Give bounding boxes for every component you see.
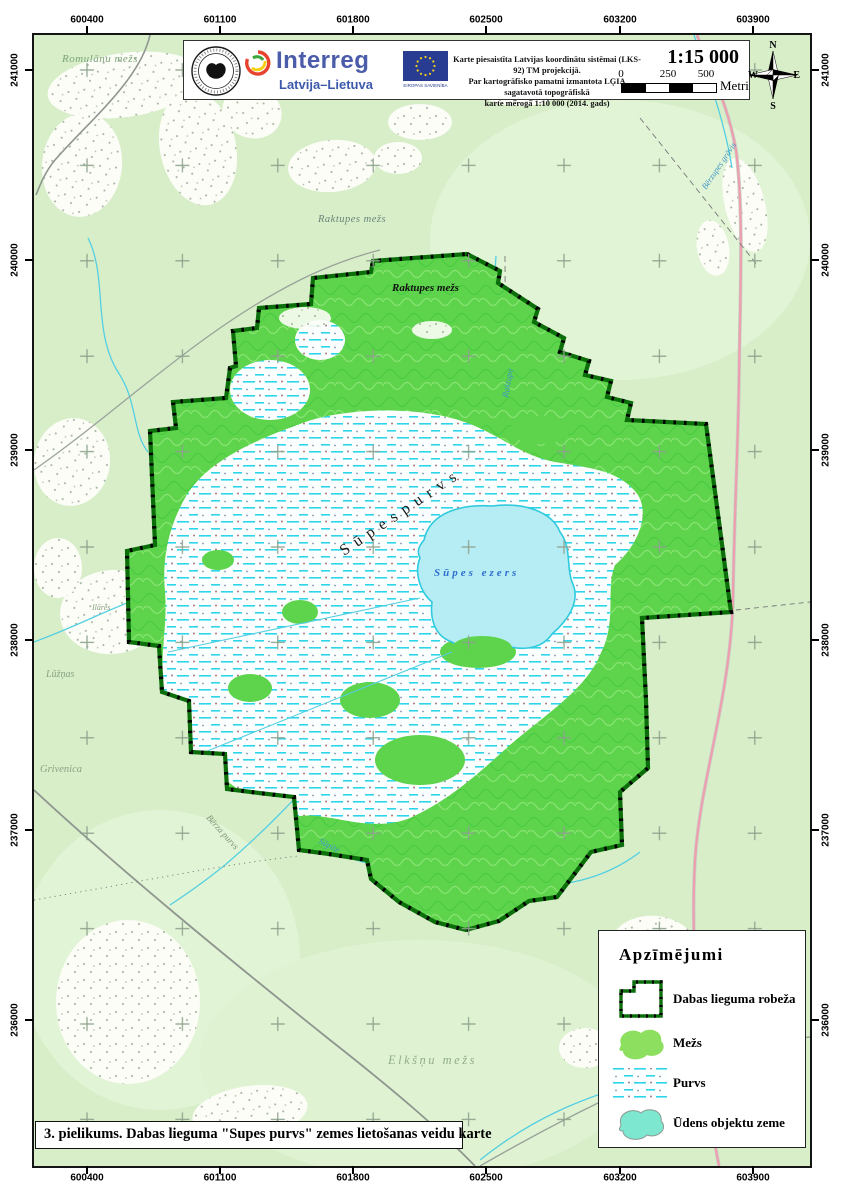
- eu-flag-label: EIROPAS SAVIENĪBA: [403, 83, 448, 88]
- map-sheet: Romulānu mežs Raktupes mežs Raktupes mež…: [0, 0, 842, 1190]
- forest-symbol-icon: [611, 1023, 669, 1063]
- label-elksnu-mezs: Elkšņu mežs: [387, 1053, 477, 1067]
- compass-n: N: [769, 40, 777, 51]
- scalebar-tick-500: 500: [698, 68, 715, 80]
- compass-e: E: [793, 70, 800, 81]
- grid-label-top: 603200: [603, 15, 636, 26]
- boundary-symbol-icon: [611, 977, 669, 1021]
- map-note-line1: Karte piesaistīta Latvijas koordinātu si…: [452, 54, 642, 76]
- label-grivenica: Grivenica: [40, 764, 82, 775]
- scalebar-tick-0: 0: [618, 68, 624, 80]
- grid-tick: [219, 1166, 221, 1174]
- grid-label-right: 240000: [821, 243, 832, 276]
- grid-tick: [25, 639, 33, 641]
- scalebar-tick-250: 250: [660, 68, 677, 80]
- grid-tick: [485, 26, 487, 34]
- legend-title: Apzīmējumi: [619, 945, 724, 965]
- grid-label-left: 238000: [10, 623, 21, 656]
- legend-label-water: Ūdens objektu zeme: [673, 1115, 785, 1131]
- label-supes-ezers: Sūpes ezers: [434, 567, 519, 579]
- grid-label-left: 239000: [10, 433, 21, 466]
- grid-label-right: 238000: [821, 623, 832, 656]
- grid-tick: [352, 1166, 354, 1174]
- legend: Apzīmējumi Dabas lieguma robeža Mežs Pur…: [598, 930, 806, 1148]
- interreg-programme-name: Latvija–Lietuva: [279, 77, 373, 92]
- grid-tick: [811, 69, 819, 71]
- legend-label-bog: Purvs: [673, 1075, 706, 1091]
- scale-ratio: 1:15 000: [667, 46, 739, 69]
- grid-tick: [811, 829, 819, 831]
- grid-label-bottom: 603200: [603, 1173, 636, 1184]
- grid-tick: [811, 259, 819, 261]
- grid-label-right: 237000: [821, 813, 832, 846]
- label-ilares: Ilāres: [91, 603, 110, 612]
- compass-rose-icon: N E S W: [746, 40, 802, 110]
- grid-label-right: 241000: [821, 53, 832, 86]
- grid-tick: [86, 26, 88, 34]
- grid-label-left: 241000: [10, 53, 21, 86]
- grid-label-left: 240000: [10, 243, 21, 276]
- grid-tick: [219, 26, 221, 34]
- grid-tick: [25, 449, 33, 451]
- map-note-line2: Par kartogrāfisko pamatni izmantota LĢIA…: [452, 76, 642, 98]
- grid-tick: [25, 1019, 33, 1021]
- grid-tick: [752, 26, 754, 34]
- grid-tick: [752, 1166, 754, 1174]
- grid-tick: [811, 639, 819, 641]
- grid-tick: [811, 1019, 819, 1021]
- label-raktupes-mezs-inside: Raktupes mežs: [391, 282, 459, 294]
- grid-label-top: 602500: [469, 15, 502, 26]
- grid-label-left: 237000: [10, 813, 21, 846]
- grid-label-bottom: 601800: [336, 1173, 369, 1184]
- scalebar-unit: Metri: [720, 78, 749, 94]
- grid-tick: [485, 1166, 487, 1174]
- grid-tick: [25, 829, 33, 831]
- grid-label-left: 236000: [10, 1003, 21, 1036]
- water-symbol-icon: [611, 1103, 669, 1143]
- legend-label-forest: Mežs: [673, 1035, 702, 1051]
- grid-tick: [86, 1166, 88, 1174]
- interreg-wordmark: Interreg: [276, 47, 369, 75]
- title-block: Interreg Latvija–Lietuva EIROPAS SAVIENĪ…: [183, 40, 750, 100]
- map-title: 3. pielikums. Dabas lieguma "Supes purvs…: [35, 1121, 463, 1149]
- grid-label-top: 601100: [204, 15, 237, 26]
- grid-label-top: 601800: [336, 15, 369, 26]
- nature-authority-emblem-icon: [189, 44, 243, 98]
- grid-tick: [25, 69, 33, 71]
- eu-flag-icon: [403, 51, 448, 81]
- bog-symbol-icon: [611, 1065, 669, 1101]
- grid-tick: [352, 26, 354, 34]
- grid-label-bottom: 600400: [70, 1173, 103, 1184]
- label-romulanu-mezs: Romulānu mežs: [61, 53, 138, 65]
- interreg-swirl-icon: [244, 49, 272, 77]
- map-note-line3: karte mērogā 1:10 000 (2014. gads): [452, 98, 642, 109]
- label-raktupes-mezs-outside: Raktupes mežs: [317, 214, 386, 225]
- grid-label-bottom: 602500: [469, 1173, 502, 1184]
- grid-label-bottom: 603900: [736, 1173, 769, 1184]
- grid-label-right: 239000: [821, 433, 832, 466]
- grid-tick: [619, 1166, 621, 1174]
- grid-tick: [25, 259, 33, 261]
- grid-label-top: 603900: [736, 15, 769, 26]
- compass-s: S: [770, 101, 776, 110]
- grid-tick: [619, 26, 621, 34]
- grid-label-bottom: 601100: [204, 1173, 237, 1184]
- scale-bar: [621, 83, 717, 93]
- grid-label-right: 236000: [821, 1003, 832, 1036]
- compass-w: W: [748, 70, 758, 81]
- grid-label-top: 600400: [70, 15, 103, 26]
- label-luznas: Lūžņas: [45, 669, 74, 680]
- grid-tick: [811, 449, 819, 451]
- legend-label-boundary: Dabas lieguma robeža: [673, 991, 796, 1007]
